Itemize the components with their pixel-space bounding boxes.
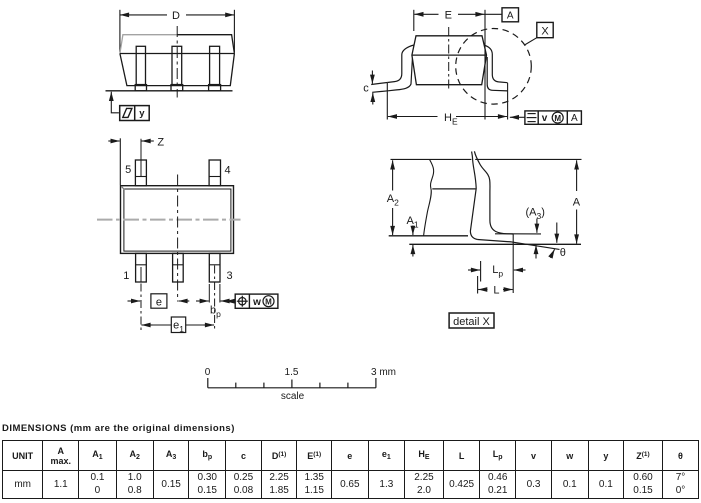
svg-text:e1: e1 [173,320,184,335]
svg-text:detail X: detail X [453,316,490,328]
svg-text:M: M [554,114,561,123]
svg-text:4: 4 [225,165,231,177]
svg-text:y: y [139,108,145,119]
svg-text:L: L [493,285,499,297]
svg-text:Z: Z [157,137,164,149]
svg-text:(A3): (A3) [526,207,545,222]
svg-text:1: 1 [123,270,129,282]
svg-text:0: 0 [205,367,211,378]
svg-text:3 mm: 3 mm [371,367,396,378]
svg-text:v: v [542,113,548,124]
svg-text:X: X [541,25,549,37]
svg-text:e: e [156,296,162,308]
svg-text:bp: bp [210,305,221,320]
svg-text:θ: θ [560,247,566,259]
svg-text:w: w [252,297,261,308]
svg-text:D: D [172,10,180,22]
svg-text:3: 3 [227,270,233,282]
svg-text:A: A [571,113,578,124]
svg-text:scale: scale [281,391,305,402]
svg-text:1.5: 1.5 [285,367,299,378]
svg-text:A: A [507,10,514,21]
svg-text:HE: HE [444,112,458,127]
svg-text:A2: A2 [387,193,399,208]
svg-text:M: M [265,298,272,307]
svg-text:Lp: Lp [492,264,503,279]
svg-text:c: c [363,83,369,95]
svg-text:A: A [573,197,581,209]
svg-text:E: E [445,10,452,22]
svg-text:5: 5 [125,164,131,176]
